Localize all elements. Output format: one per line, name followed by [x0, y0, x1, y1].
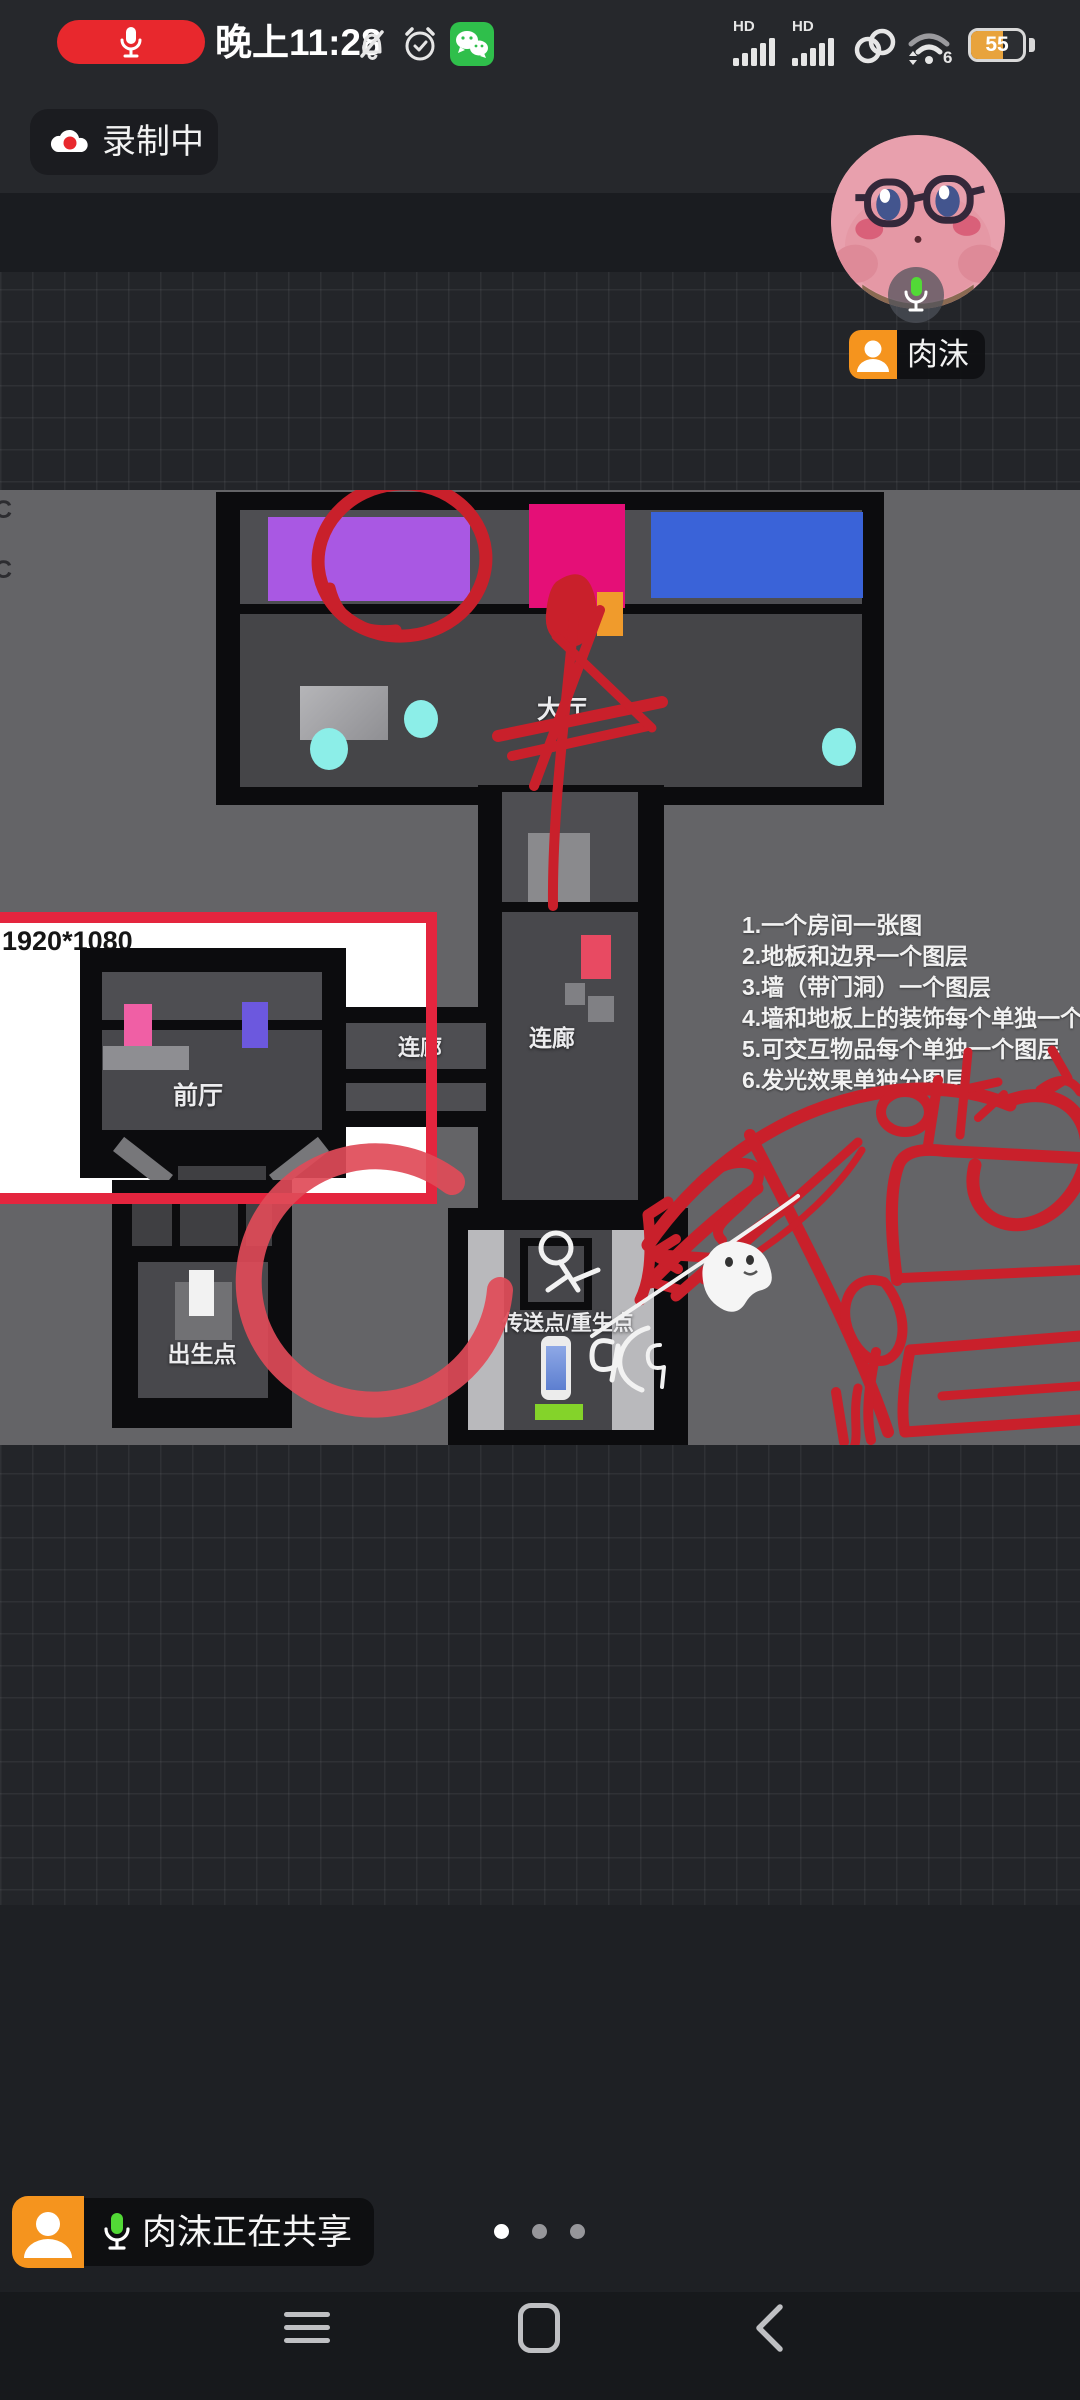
signal-bars-icon-1	[733, 36, 781, 66]
recording-label: 录制中	[102, 109, 204, 175]
share-banner-pill: 肉沫正在共享	[84, 2198, 374, 2266]
sharer-avatar-icon	[12, 2196, 84, 2268]
nav-back-button[interactable]	[752, 2303, 788, 2353]
participant-name-pill: 肉沫	[897, 330, 985, 379]
participant-avatar-icon	[849, 330, 897, 379]
share-banner-text: 肉沫正在共享	[142, 2198, 352, 2266]
wechat-icon	[450, 22, 494, 66]
page-dot[interactable]	[532, 2224, 547, 2239]
recording-badge[interactable]: 录制中	[30, 109, 218, 175]
page-dot[interactable]	[570, 2224, 585, 2239]
signal-bars-icon-2	[792, 36, 840, 66]
signal-hd-label-2: HD	[792, 18, 814, 35]
mic-status-indicator[interactable]	[888, 267, 944, 323]
wifi-band-label: 6	[943, 48, 952, 68]
annotation-overlay	[0, 490, 1080, 1445]
battery-nub	[1029, 38, 1035, 52]
phone-screen: 晚上11:28 HD	[0, 0, 1080, 2400]
battery-level: 55	[971, 31, 1023, 59]
alarm-clock-icon	[398, 22, 442, 66]
signal-hd-label-1: HD	[733, 18, 755, 35]
microphone-icon	[118, 26, 144, 58]
call-pill[interactable]	[57, 20, 205, 64]
nav-home-button[interactable]	[518, 2303, 560, 2353]
nav-menu-button[interactable]	[284, 2312, 330, 2344]
shared-screen: C C 1920*1080 大厅	[0, 490, 1080, 1445]
cloud-record-icon	[48, 126, 92, 158]
page-dot-active[interactable]	[494, 2224, 509, 2239]
status-bar: 晚上11:28 HD	[0, 0, 1080, 80]
participant-name: 肉沫	[907, 330, 969, 379]
mute-bell-icon	[352, 24, 392, 64]
battery-icon: 55	[968, 28, 1026, 62]
microphone-active-icon	[102, 2212, 132, 2252]
microphone-active-icon	[902, 277, 930, 313]
wifi-icon: 6	[905, 26, 957, 70]
vowifi-rings-icon	[850, 26, 900, 66]
